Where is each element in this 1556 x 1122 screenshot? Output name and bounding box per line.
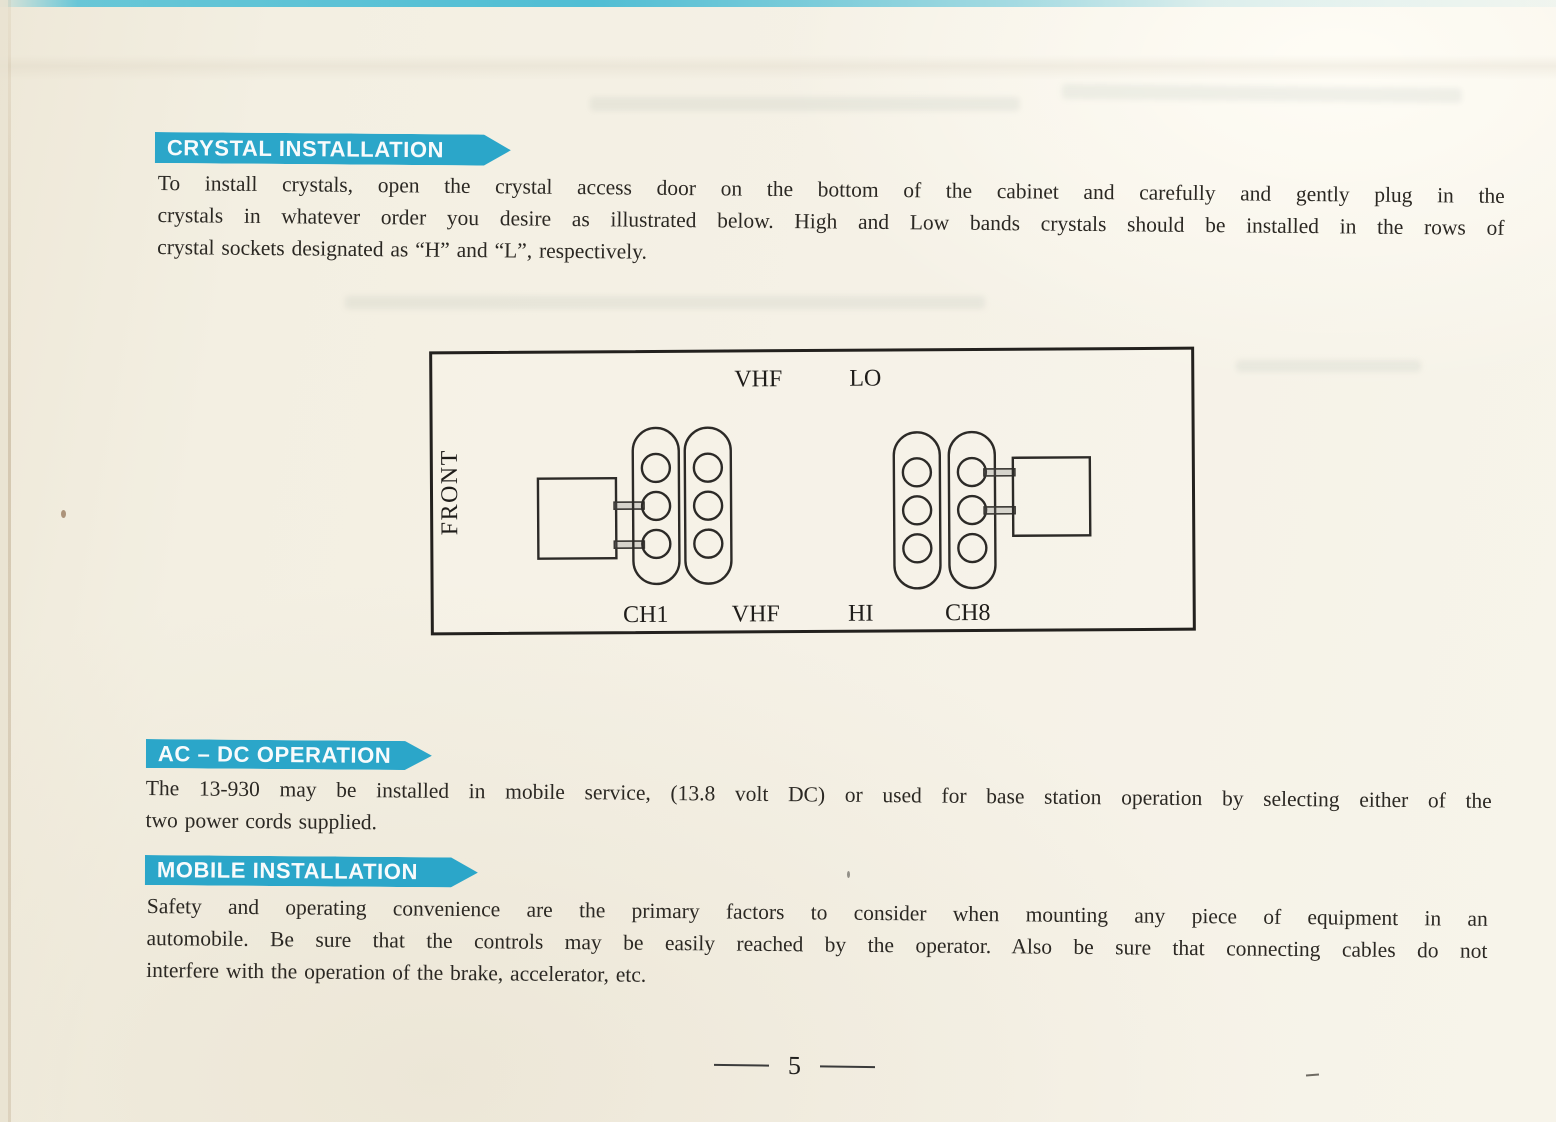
bleedthrough-artifact [1062,84,1462,103]
bleedthrough-artifact [1236,360,1421,372]
scan-speck [847,871,850,878]
crystal-right [1013,457,1090,535]
label-lo-top: LO [849,366,881,392]
socket-hole [694,530,722,558]
bleedthrough-artifact [345,296,985,309]
footer-rule [714,1064,769,1067]
socket-hole [903,496,931,524]
socket-hole [642,530,670,558]
crystal-prong [984,469,1015,476]
page-edge-line [8,0,11,1122]
crystal-left [538,478,616,558]
section-header-label: AC – DC OPERATION [158,741,392,769]
section-header-mobile-installation: MOBILE INSTALLATION [145,855,478,888]
label-vhf-bottom: VHF [732,601,780,627]
socket-hole [903,534,931,562]
scan-dash-artifact [1306,1074,1319,1077]
socket-strip-hi [894,432,941,588]
label-vhf-top: VHF [734,366,782,392]
crystal-prong [984,507,1015,514]
page-margin-shadow [0,0,8,1122]
page-number: 5 [788,1053,801,1079]
footer-rule [820,1065,875,1068]
crystal-prong [614,541,644,548]
section-header-crystal-installation: CRYSTAL INSTALLATION [155,132,511,166]
crystal-installation-paragraph: To install crystals, open the crystal ac… [157,167,1505,276]
crystal-prong [614,502,644,509]
socket-hole [642,454,670,482]
page-footer: 5 [714,1052,875,1080]
scan-edge-artifact [0,0,1556,7]
mobile-installation-paragraph: Safety and operating convenience are the… [146,890,1488,999]
section-header-ac-dc-operation: AC – DC OPERATION [146,739,432,770]
manual-page: CRYSTAL INSTALLATION To install crystals… [0,0,1556,1122]
socket-hole [903,458,931,486]
socket-hole [694,454,722,482]
socket-hole [958,534,986,562]
label-ch8: CH8 [945,600,991,626]
ac-dc-operation-paragraph: The 13-930 may be installed in mobile se… [145,772,1492,849]
socket-hole [958,458,986,486]
label-ch1: CH1 [623,602,669,628]
section-header-label: MOBILE INSTALLATION [157,857,418,885]
label-hi: HI [848,601,873,627]
bleedthrough-artifact [590,97,1020,111]
crystal-socket-diagram: VHF LO FRONT [429,347,1196,636]
socket-strip-vhf-low [685,427,732,583]
label-front: FRONT [437,449,464,535]
socket-hole [694,492,722,520]
socket-hole [642,492,670,520]
socket-hole [958,496,986,524]
scan-speck [61,510,66,518]
diagram-canvas: VHF LO FRONT [432,350,1193,633]
section-header-label: CRYSTAL INSTALLATION [167,135,444,163]
